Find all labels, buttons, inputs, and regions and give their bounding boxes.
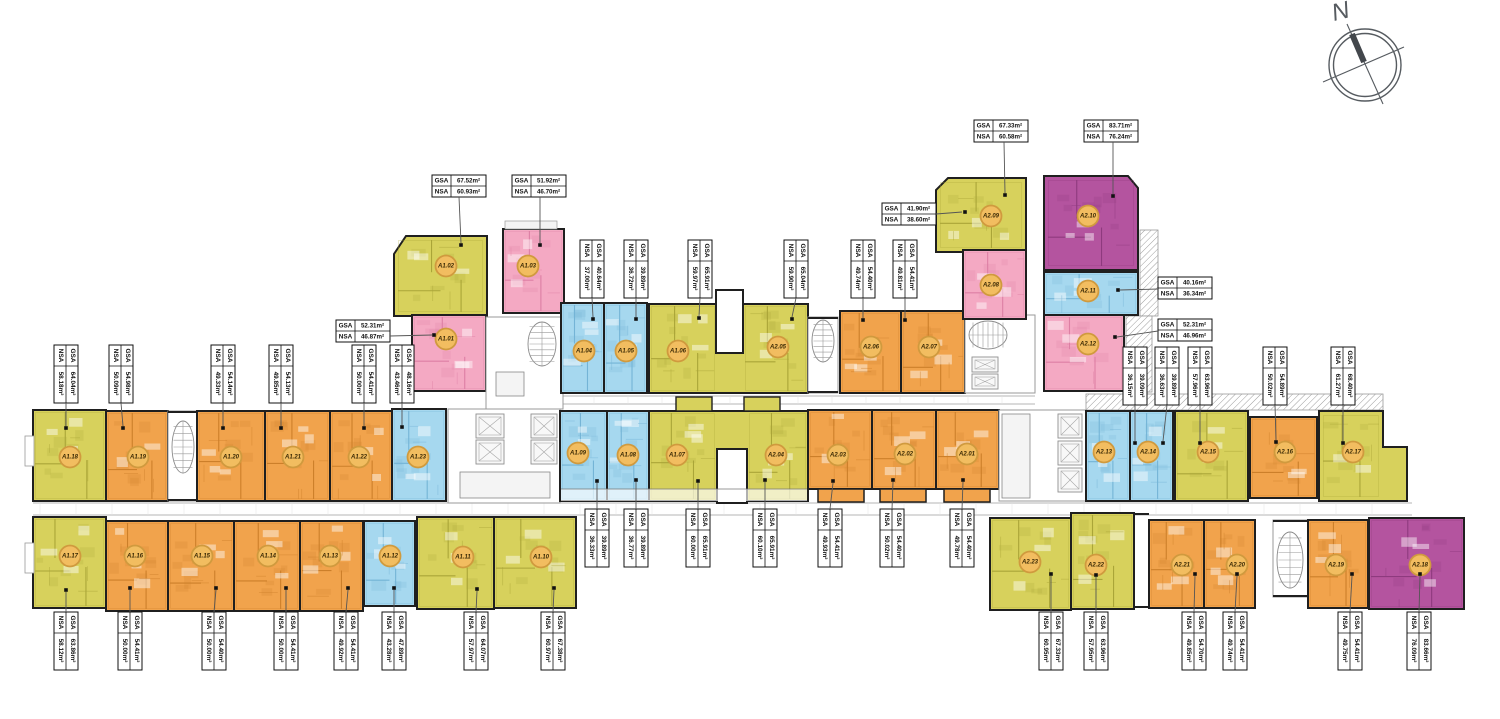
svg-text:NSA: NSA bbox=[787, 244, 794, 258]
svg-text:GSA: GSA bbox=[639, 243, 646, 257]
svg-text:46.70m²: 46.70m² bbox=[537, 188, 560, 195]
svg-text:63.96m²: 63.96m² bbox=[1203, 374, 1210, 398]
svg-text:54.41m²: 54.41m² bbox=[1353, 639, 1360, 663]
svg-text:NSA: NSA bbox=[205, 616, 212, 630]
svg-text:43.28m²: 43.28m² bbox=[385, 639, 392, 663]
svg-text:GSA: GSA bbox=[367, 348, 374, 362]
svg-text:GSA: GSA bbox=[768, 512, 775, 526]
svg-text:60.58m²: 60.58m² bbox=[999, 133, 1022, 140]
svg-text:50.09m²: 50.09m² bbox=[112, 372, 119, 396]
svg-text:67.52m²: 67.52m² bbox=[457, 177, 480, 184]
svg-text:67.33m²: 67.33m² bbox=[999, 122, 1022, 129]
svg-text:GSA: GSA bbox=[703, 243, 710, 257]
svg-text:NSA: NSA bbox=[756, 513, 763, 527]
svg-text:A2.01: A2.01 bbox=[958, 452, 976, 458]
svg-text:A2.13: A2.13 bbox=[1095, 450, 1113, 456]
svg-text:NSA: NSA bbox=[385, 616, 392, 630]
svg-text:36.34m²: 36.34m² bbox=[1183, 290, 1206, 297]
svg-text:NSA: NSA bbox=[627, 513, 634, 527]
svg-text:GSA: GSA bbox=[284, 348, 291, 362]
svg-text:NSA: NSA bbox=[467, 616, 474, 630]
svg-text:A2.20: A2.20 bbox=[1228, 563, 1246, 569]
svg-text:60.00m²: 60.00m² bbox=[689, 536, 696, 560]
svg-text:GSA: GSA bbox=[1203, 350, 1210, 364]
svg-text:GSA: GSA bbox=[833, 512, 840, 526]
svg-text:50.02m²: 50.02m² bbox=[1266, 374, 1273, 398]
svg-text:A2.14: A2.14 bbox=[1139, 450, 1157, 456]
svg-text:GSA: GSA bbox=[226, 348, 233, 362]
svg-text:NSA: NSA bbox=[1334, 351, 1341, 365]
svg-text:57.97m²: 57.97m² bbox=[467, 639, 474, 663]
svg-text:NSA: NSA bbox=[1341, 616, 1348, 630]
svg-text:GSA: GSA bbox=[1346, 350, 1353, 364]
svg-text:NSA: NSA bbox=[691, 244, 698, 258]
svg-text:A2.06: A2.06 bbox=[862, 345, 880, 351]
svg-text:54.40m²: 54.40m² bbox=[895, 536, 902, 560]
svg-text:GSA: GSA bbox=[1138, 350, 1145, 364]
svg-text:GSA: GSA bbox=[435, 177, 449, 184]
svg-text:39.89m²: 39.89m² bbox=[639, 267, 646, 291]
svg-text:A1.21: A1.21 bbox=[284, 455, 302, 461]
svg-text:60.93m²: 60.93m² bbox=[457, 188, 480, 195]
svg-text:A1.23: A1.23 bbox=[409, 455, 427, 461]
svg-text:NSA: NSA bbox=[337, 616, 344, 630]
svg-text:A2.09: A2.09 bbox=[982, 214, 1000, 220]
svg-text:46.87m²: 46.87m² bbox=[361, 333, 384, 340]
svg-text:38.60m²: 38.60m² bbox=[907, 216, 930, 223]
svg-text:49.78m²: 49.78m² bbox=[953, 536, 960, 560]
svg-text:NSA: NSA bbox=[277, 616, 284, 630]
svg-text:A2.08: A2.08 bbox=[982, 283, 1000, 289]
svg-text:NSA: NSA bbox=[1191, 351, 1198, 365]
svg-text:NSA: NSA bbox=[355, 349, 362, 363]
svg-text:A1.17: A1.17 bbox=[61, 554, 79, 560]
svg-text:NSA: NSA bbox=[896, 244, 903, 258]
svg-text:A1.19: A1.19 bbox=[129, 455, 147, 461]
svg-text:NSA: NSA bbox=[1410, 616, 1417, 630]
svg-text:61.27m²: 61.27m² bbox=[1334, 374, 1341, 398]
svg-text:A1.07: A1.07 bbox=[668, 453, 686, 459]
svg-text:A2.18: A2.18 bbox=[1411, 563, 1429, 569]
svg-text:40.64m²: 40.64m² bbox=[595, 267, 602, 291]
svg-text:NSA: NSA bbox=[1158, 351, 1165, 365]
svg-text:59.97m²: 59.97m² bbox=[691, 267, 698, 291]
svg-text:50.02m²: 50.02m² bbox=[883, 536, 890, 560]
svg-text:43.46m²: 43.46m² bbox=[393, 372, 400, 396]
svg-text:54.41m²: 54.41m² bbox=[367, 372, 374, 396]
svg-text:GSA: GSA bbox=[133, 615, 140, 629]
svg-text:51.92m²: 51.92m² bbox=[537, 177, 560, 184]
svg-text:GSA: GSA bbox=[556, 615, 563, 629]
svg-text:50.00m²: 50.00m² bbox=[205, 639, 212, 663]
svg-text:GSA: GSA bbox=[1054, 615, 1061, 629]
svg-text:A2.12: A2.12 bbox=[1079, 342, 1097, 348]
svg-text:NSA: NSA bbox=[885, 216, 899, 223]
svg-text:GSA: GSA bbox=[289, 615, 296, 629]
svg-text:A2.15: A2.15 bbox=[1199, 450, 1217, 456]
svg-text:54.70m²: 54.70m² bbox=[1197, 639, 1204, 663]
svg-text:54.41m²: 54.41m² bbox=[833, 536, 840, 560]
svg-text:39.89m²: 39.89m² bbox=[1170, 374, 1177, 398]
svg-text:GSA: GSA bbox=[1087, 122, 1101, 129]
svg-text:54.41m²: 54.41m² bbox=[133, 639, 140, 663]
svg-text:50.00m²: 50.00m² bbox=[277, 639, 284, 663]
svg-text:63.86m²: 63.86m² bbox=[69, 639, 76, 663]
svg-text:NSA: NSA bbox=[435, 188, 449, 195]
svg-text:50.00m²: 50.00m² bbox=[121, 639, 128, 663]
svg-text:60.97m²: 60.97m² bbox=[544, 639, 551, 663]
svg-text:NSA: NSA bbox=[854, 244, 861, 258]
svg-text:NSA: NSA bbox=[393, 349, 400, 363]
svg-text:NSA: NSA bbox=[339, 333, 353, 340]
svg-text:NSA: NSA bbox=[515, 188, 529, 195]
svg-text:54.40m²: 54.40m² bbox=[217, 639, 224, 663]
svg-text:A2.07: A2.07 bbox=[920, 345, 938, 351]
svg-text:64.04m²: 64.04m² bbox=[69, 372, 76, 396]
svg-text:GSA: GSA bbox=[69, 615, 76, 629]
svg-text:GSA: GSA bbox=[1161, 279, 1175, 286]
svg-text:54.40m²: 54.40m² bbox=[866, 267, 873, 291]
svg-text:GSA: GSA bbox=[1238, 615, 1245, 629]
svg-text:NSA: NSA bbox=[821, 513, 828, 527]
svg-text:83.66m²: 83.66m² bbox=[1422, 639, 1429, 663]
svg-text:A2.10: A2.10 bbox=[1079, 214, 1097, 220]
svg-text:A1.02: A1.02 bbox=[437, 264, 455, 270]
svg-text:A1.15: A1.15 bbox=[193, 554, 211, 560]
svg-text:A1.20: A1.20 bbox=[222, 455, 240, 461]
svg-text:A1.13: A1.13 bbox=[321, 554, 339, 560]
svg-text:A2.19: A2.19 bbox=[1327, 563, 1345, 569]
svg-text:83.71m²: 83.71m² bbox=[1109, 122, 1132, 129]
svg-text:NSA: NSA bbox=[1226, 616, 1233, 630]
svg-text:67.38m²: 67.38m² bbox=[556, 639, 563, 663]
svg-text:41.90m²: 41.90m² bbox=[907, 205, 930, 212]
svg-text:54.41m²: 54.41m² bbox=[349, 639, 356, 663]
svg-text:64.07m²: 64.07m² bbox=[479, 639, 486, 663]
svg-text:GSA: GSA bbox=[977, 122, 991, 129]
svg-text:54.13m²: 54.13m² bbox=[284, 372, 291, 396]
svg-text:GSA: GSA bbox=[397, 615, 404, 629]
svg-text:A1.11: A1.11 bbox=[454, 555, 471, 561]
svg-text:67.33m²: 67.33m² bbox=[1054, 639, 1061, 663]
svg-text:A2.04: A2.04 bbox=[767, 453, 785, 459]
svg-text:50.00m²: 50.00m² bbox=[355, 372, 362, 396]
svg-text:A1.10: A1.10 bbox=[532, 555, 550, 561]
svg-text:A2.21: A2.21 bbox=[1173, 563, 1191, 569]
svg-text:54.98m²: 54.98m² bbox=[124, 372, 131, 396]
svg-text:48.16m²: 48.16m² bbox=[405, 372, 412, 396]
svg-text:GSA: GSA bbox=[885, 205, 899, 212]
svg-text:47.89m²: 47.89m² bbox=[397, 639, 404, 663]
svg-text:GSA: GSA bbox=[515, 177, 529, 184]
svg-text:NSA: NSA bbox=[588, 513, 595, 527]
svg-text:65.04m²: 65.04m² bbox=[799, 267, 806, 291]
svg-text:NSA: NSA bbox=[689, 513, 696, 527]
svg-text:57.96m²: 57.96m² bbox=[1191, 374, 1198, 398]
svg-text:A1.16: A1.16 bbox=[126, 554, 144, 560]
svg-text:54.14m²: 54.14m² bbox=[226, 372, 233, 396]
svg-text:GSA: GSA bbox=[701, 512, 708, 526]
svg-text:39.89m²: 39.89m² bbox=[600, 536, 607, 560]
svg-text:NSA: NSA bbox=[112, 349, 119, 363]
svg-text:NSA: NSA bbox=[627, 244, 634, 258]
svg-text:36.15m²: 36.15m² bbox=[1126, 374, 1133, 398]
svg-text:GSA: GSA bbox=[1099, 615, 1106, 629]
svg-text:52.31m²: 52.31m² bbox=[1183, 321, 1206, 328]
svg-text:GSA: GSA bbox=[124, 348, 131, 362]
svg-text:A1.01: A1.01 bbox=[437, 337, 455, 343]
svg-text:GSA: GSA bbox=[908, 243, 915, 257]
svg-text:A1.09: A1.09 bbox=[569, 451, 587, 457]
svg-text:57.95m²: 57.95m² bbox=[1087, 639, 1094, 663]
svg-text:GSA: GSA bbox=[349, 615, 356, 629]
svg-text:49.85m²: 49.85m² bbox=[1185, 639, 1192, 663]
svg-text:36.63m²: 36.63m² bbox=[1158, 374, 1165, 398]
svg-text:NSA: NSA bbox=[57, 616, 64, 630]
svg-text:GSA: GSA bbox=[866, 243, 873, 257]
svg-text:GSA: GSA bbox=[1353, 615, 1360, 629]
svg-text:GSA: GSA bbox=[69, 348, 76, 362]
svg-text:65.91m²: 65.91m² bbox=[701, 536, 708, 560]
svg-text:GSA: GSA bbox=[405, 348, 412, 362]
svg-text:NSA: NSA bbox=[1126, 351, 1133, 365]
svg-text:GSA: GSA bbox=[1422, 615, 1429, 629]
svg-text:GSA: GSA bbox=[600, 512, 607, 526]
svg-text:36.33m²: 36.33m² bbox=[588, 536, 595, 560]
svg-text:36.72m²: 36.72m² bbox=[627, 267, 634, 291]
svg-text:49.93m²: 49.93m² bbox=[821, 536, 828, 560]
svg-text:NSA: NSA bbox=[977, 133, 991, 140]
svg-text:NSA: NSA bbox=[1087, 616, 1094, 630]
svg-text:40.16m²: 40.16m² bbox=[1183, 279, 1206, 286]
svg-text:A2.11: A2.11 bbox=[1079, 289, 1096, 295]
svg-text:A1.22: A1.22 bbox=[350, 455, 368, 461]
svg-text:GSA: GSA bbox=[479, 615, 486, 629]
svg-text:GSA: GSA bbox=[965, 512, 972, 526]
svg-text:NSA: NSA bbox=[883, 513, 890, 527]
svg-text:A1.05: A1.05 bbox=[617, 349, 635, 355]
svg-text:GSA: GSA bbox=[1161, 321, 1175, 328]
svg-text:GSA: GSA bbox=[799, 243, 806, 257]
svg-text:GSA: GSA bbox=[1197, 615, 1204, 629]
svg-text:NSA: NSA bbox=[57, 349, 64, 363]
svg-text:GSA: GSA bbox=[595, 243, 602, 257]
svg-text:49.85m²: 49.85m² bbox=[272, 372, 279, 396]
svg-text:A1.14: A1.14 bbox=[259, 554, 277, 560]
svg-text:60.10m²: 60.10m² bbox=[756, 536, 763, 560]
svg-text:36.77m²: 36.77m² bbox=[627, 536, 634, 560]
svg-text:NSA: NSA bbox=[214, 349, 221, 363]
svg-text:A2.02: A2.02 bbox=[896, 452, 914, 458]
svg-text:52.31m²: 52.31m² bbox=[361, 322, 384, 329]
svg-text:46.96m²: 46.96m² bbox=[1183, 332, 1206, 339]
svg-text:NSA: NSA bbox=[1087, 133, 1101, 140]
svg-text:39.89m²: 39.89m² bbox=[639, 536, 646, 560]
svg-text:68.40m²: 68.40m² bbox=[1346, 374, 1353, 398]
svg-text:54.41m²: 54.41m² bbox=[289, 639, 296, 663]
svg-text:54.41m²: 54.41m² bbox=[908, 267, 915, 291]
svg-text:49.81m²: 49.81m² bbox=[896, 267, 903, 291]
svg-text:58.12m²: 58.12m² bbox=[57, 639, 64, 663]
svg-text:49.75m²: 49.75m² bbox=[1341, 639, 1348, 663]
svg-text:NSA: NSA bbox=[953, 513, 960, 527]
svg-text:NSA: NSA bbox=[544, 616, 551, 630]
svg-text:NSA: NSA bbox=[1042, 616, 1049, 630]
svg-text:76.09m²: 76.09m² bbox=[1410, 639, 1417, 663]
svg-text:49.74m²: 49.74m² bbox=[1226, 639, 1233, 663]
svg-text:A2.22: A2.22 bbox=[1087, 563, 1105, 569]
svg-text:59.90m²: 59.90m² bbox=[787, 267, 794, 291]
svg-text:A1.04: A1.04 bbox=[575, 349, 593, 355]
svg-text:GSA: GSA bbox=[1278, 350, 1285, 364]
svg-text:GSA: GSA bbox=[339, 322, 353, 329]
svg-text:63.96m²: 63.96m² bbox=[1099, 639, 1106, 663]
svg-text:54.40m²: 54.40m² bbox=[965, 536, 972, 560]
svg-text:GSA: GSA bbox=[639, 512, 646, 526]
svg-text:A1.08: A1.08 bbox=[619, 453, 637, 459]
svg-text:A1.18: A1.18 bbox=[61, 455, 79, 461]
svg-text:NSA: NSA bbox=[121, 616, 128, 630]
svg-text:A2.16: A2.16 bbox=[1276, 450, 1294, 456]
svg-text:49.92m²: 49.92m² bbox=[337, 639, 344, 663]
svg-text:NSA: NSA bbox=[1161, 332, 1175, 339]
svg-text:54.41m²: 54.41m² bbox=[1238, 639, 1245, 663]
svg-text:65.91m²: 65.91m² bbox=[768, 536, 775, 560]
svg-text:GSA: GSA bbox=[1170, 350, 1177, 364]
svg-text:39.09m²: 39.09m² bbox=[1138, 374, 1145, 398]
svg-text:NSA: NSA bbox=[583, 244, 590, 258]
svg-text:NSA: NSA bbox=[1266, 351, 1273, 365]
svg-text:A1.06: A1.06 bbox=[669, 349, 687, 355]
svg-text:60.95m²: 60.95m² bbox=[1042, 639, 1049, 663]
svg-text:A2.03: A2.03 bbox=[829, 453, 847, 459]
svg-text:NSA: NSA bbox=[272, 349, 279, 363]
svg-text:NSA: NSA bbox=[1185, 616, 1192, 630]
svg-text:A1.03: A1.03 bbox=[519, 264, 537, 270]
svg-text:NSA: NSA bbox=[1161, 290, 1175, 297]
svg-text:A2.23: A2.23 bbox=[1021, 560, 1039, 566]
svg-text:A2.17: A2.17 bbox=[1344, 450, 1362, 456]
svg-text:49.74m²: 49.74m² bbox=[854, 267, 861, 291]
svg-text:A1.12: A1.12 bbox=[381, 554, 399, 560]
svg-text:54.89m²: 54.89m² bbox=[1278, 374, 1285, 398]
svg-text:GSA: GSA bbox=[895, 512, 902, 526]
svg-text:A2.05: A2.05 bbox=[769, 345, 787, 351]
svg-text:49.33m²: 49.33m² bbox=[214, 372, 221, 396]
svg-text:GSA: GSA bbox=[217, 615, 224, 629]
svg-text:58.18m²: 58.18m² bbox=[57, 372, 64, 396]
svg-text:37.00m²: 37.00m² bbox=[583, 267, 590, 291]
svg-text:76.24m²: 76.24m² bbox=[1109, 133, 1132, 140]
svg-text:65.91m²: 65.91m² bbox=[703, 267, 710, 291]
